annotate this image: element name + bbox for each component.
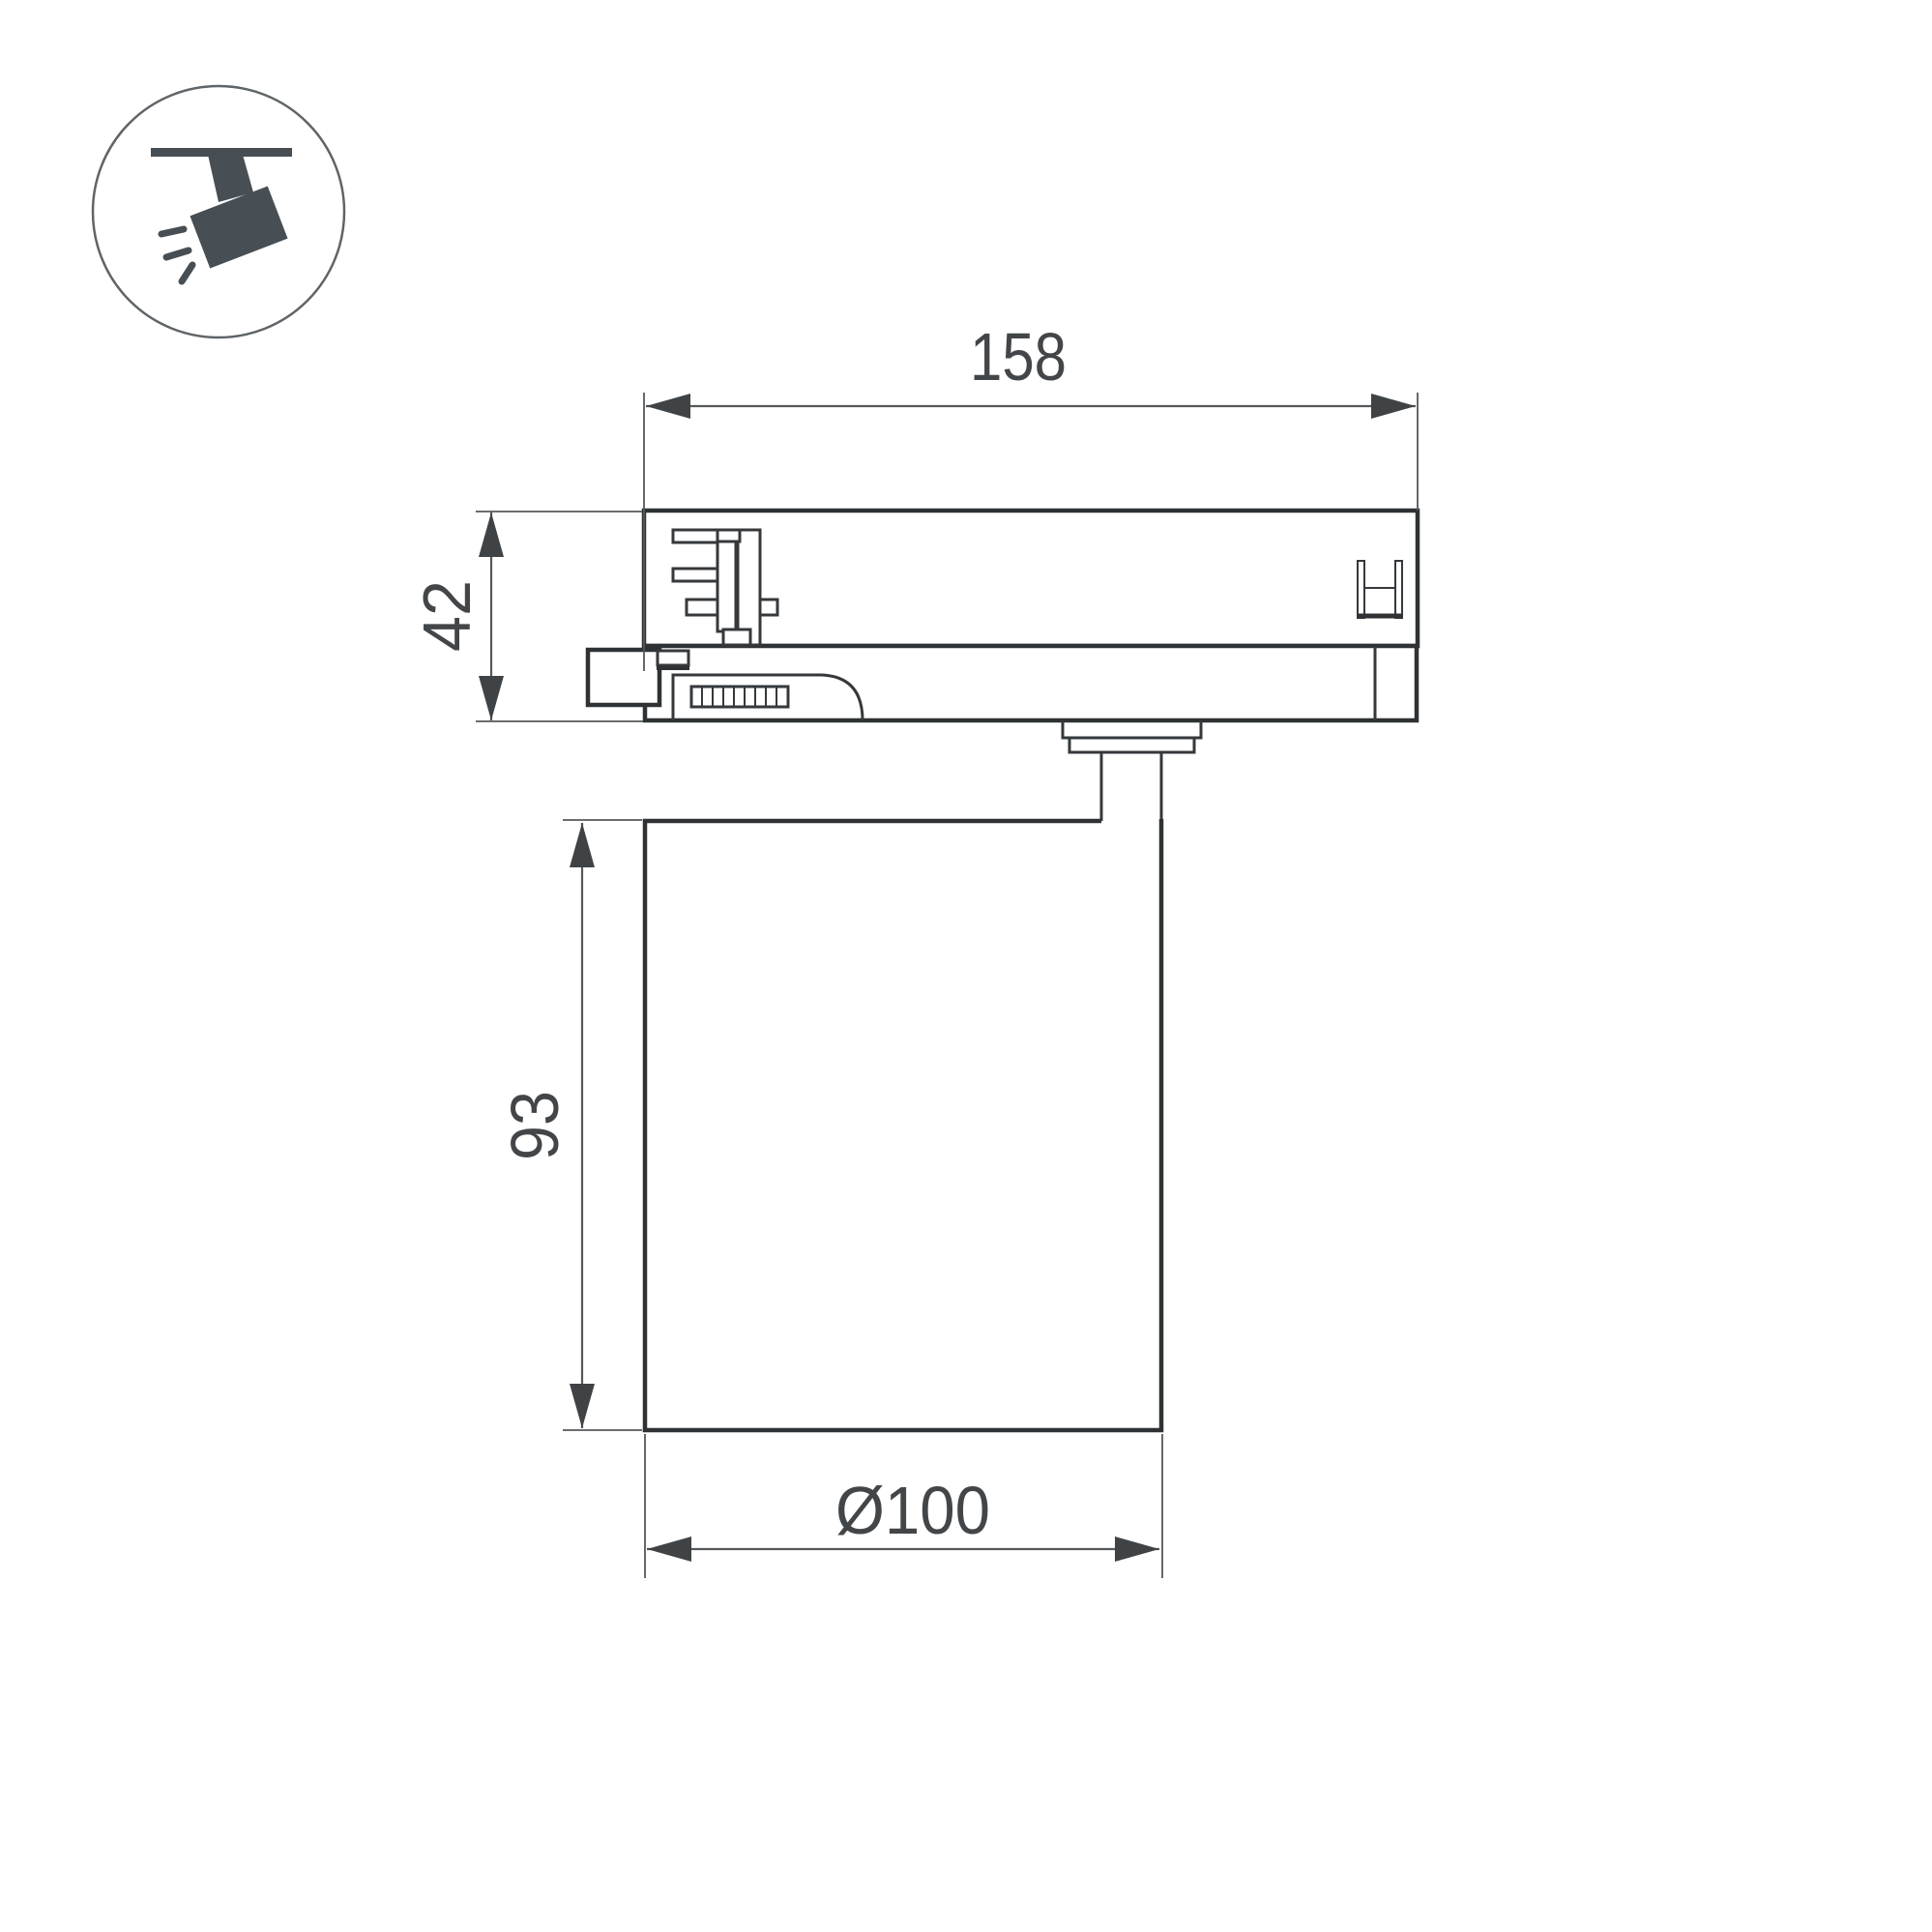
adapter-lower-band [645, 646, 1417, 720]
dimension-label-158: 158 [970, 319, 1067, 395]
fixture-side-view [588, 511, 1418, 1430]
arrowhead-right [1115, 1537, 1159, 1562]
contact-prong [673, 530, 717, 542]
arrowhead-up [479, 512, 504, 557]
dimension-label-diameter: Ø100 [835, 1473, 990, 1548]
arrowhead-down [479, 676, 504, 720]
contact-prong [687, 600, 717, 615]
lock-clip [658, 651, 688, 665]
lamp-body-cylinder [645, 819, 1161, 1430]
side-lock-box [588, 650, 659, 705]
technical-drawing: 158 42 93 Ø100 [0, 0, 1932, 1932]
swivel-mount [1063, 720, 1201, 821]
dimension-label-93: 93 [497, 1091, 572, 1160]
arrowhead-left [647, 1537, 691, 1562]
light-ray-icon [161, 229, 184, 234]
dimension-body-diameter: Ø100 [645, 1434, 1162, 1578]
arrowhead-up [570, 823, 595, 867]
product-pictogram-badge [93, 86, 344, 337]
arrowhead-right [1371, 394, 1416, 419]
contact-prong [673, 569, 717, 581]
dimension-label-42: 42 [409, 580, 484, 652]
drawing-page: 158 42 93 Ø100 [0, 0, 1932, 1932]
dimension-body-height: 93 [497, 820, 642, 1430]
arrowhead-left [646, 394, 690, 419]
arrowhead-down [570, 1384, 595, 1428]
